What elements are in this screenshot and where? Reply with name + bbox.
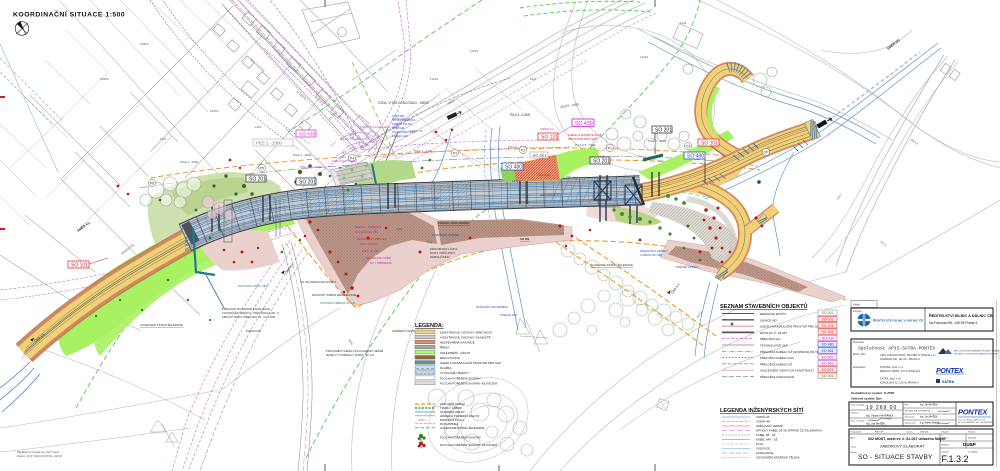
svg-text:SEZNAM STAVEBNÍCH OBJEKTŮ: SEZNAM STAVEBNÍCH OBJEKTŮ <box>720 302 808 310</box>
svg-text:PONTEX, spol. s r.o.: PONTEX, spol. s r.o. <box>880 365 904 369</box>
svg-text:APIS VODOHOSPODÁŘSKÉ PROJEKTY: APIS VODOHOSPODÁŘSKÉ PROJEKTY PRAHA s.r.… <box>954 350 1000 353</box>
svg-text:Vypracoval:: Vypracoval: <box>905 422 917 425</box>
svg-text:ODVODNĚNÍ KRAŽNÍHO TĚLESA: ODVODNĚNÍ KRAŽNÍHO TĚLESA <box>756 455 800 460</box>
svg-text:VODNÍ HM: VODNÍ HM <box>756 420 771 424</box>
svg-text:1422/1: 1422/1 <box>640 55 649 59</box>
svg-text:SATRA: SATRA <box>942 380 955 384</box>
svg-text:07/2024: 07/2024 <box>968 438 977 440</box>
svg-text:SATRA, spol. s r.o.: SATRA, spol. s r.o. <box>880 377 902 381</box>
svg-text:PILE 2 - 2000: PILE 2 - 2000 <box>293 153 312 157</box>
svg-text:VZDA. 1+536 KONCOVACI - 28000: VZDA. 1+536 KONCOVACI - 28000 <box>378 101 429 105</box>
svg-text:SILNICE I/62: SILNICE I/62 <box>760 318 777 322</box>
svg-text:I/62 MOST, most ev. č. 62-067: I/62 MOST, most ev. č. 62-067 uhlazeno M… <box>868 437 946 441</box>
svg-text:tel: +420 244062412 fax: +420: tel: +420 244062412 fax: +420 244062413 <box>958 421 994 424</box>
svg-text:Zhotovitel:: Zhotovitel: <box>853 341 864 344</box>
svg-text:SO 121: SO 121 <box>821 324 833 328</box>
svg-text:Ing. Jan MAŠEK: Ing. Jan MAŠEK <box>920 416 938 419</box>
svg-text:Título:: Título: <box>851 446 857 449</box>
svg-text:HIP:: HIP: <box>905 405 910 407</box>
svg-text:PŮV. MOSTU: PŮV. MOSTU <box>360 241 378 246</box>
svg-text:P2: P2 <box>521 148 525 152</box>
svg-text:1314: 1314 <box>530 77 537 81</box>
svg-text:PLOCHA POŘEŠENÍ SKUPINY KE KÁC: PLOCHA POŘEŠENÍ SKUPINY KE KÁCENÍ <box>440 442 497 447</box>
svg-text:KANALIZACE: KANALIZACE <box>756 451 774 455</box>
svg-text:Spolupráce:: Spolupráce: <box>853 366 866 369</box>
svg-text:OHRADNÍ 24b, 140 00 - PRAHA 4: OHRADNÍ 24b, 140 00 - PRAHA 4 <box>880 357 920 361</box>
svg-text:PROJEKTY VODOHOSPODÁŘSKÝCH STA: PROJEKTY VODOHOSPODÁŘSKÝCH STAVEB <box>954 353 998 356</box>
svg-text:KONSTRUKCE VOZOVKY NA MOSTĚ: KONSTRUKCE VOZOVKY NA MOSTĚ <box>440 335 491 340</box>
svg-text:SJEZD A MANIPULAČNÍ PROSTOR PR: SJEZD A MANIPULAČNÍ PROSTOR PRO SAP <box>440 360 501 365</box>
svg-text:DEMOLICE MOSTU: DEMOLICE MOSTU <box>760 312 786 316</box>
svg-text:LEGENDA:: LEGENDA: <box>415 323 444 329</box>
svg-text:SO 101: SO 101 <box>701 141 718 147</box>
svg-text:SO 201: SO 201 <box>299 180 316 186</box>
svg-text:SO 001: SO 001 <box>533 153 548 158</box>
svg-text:OCHRANNÉ PÁSMO ŽELEZNICE: OCHRANNÉ PÁSMO ŽELEZNICE <box>440 425 485 430</box>
svg-text:MOST EV. Č. 62-067: MOST EV. Č. 62-067 <box>760 330 787 335</box>
svg-text:PŘELOŽKA KABELŮ SŽ: PŘELOŽKA KABELŮ SŽ <box>760 361 792 366</box>
svg-text:Vedoucí:: Vedoucí: <box>851 413 860 415</box>
svg-text:KABEL SŽ - SŽ: KABEL SŽ - SŽ <box>756 432 776 437</box>
svg-text:Datum: 23.07.2024 13:45:51 +02: Datum: 23.07.2024 13:45:51 +02:00 <box>17 454 62 458</box>
svg-text:LEGENDA INŽENÝRSKÝCH SÍTÍ: LEGENDA INŽENÝRSKÝCH SÍTÍ <box>720 406 804 414</box>
svg-text:P6: P6 <box>150 181 154 185</box>
svg-text:STÁVAJÍCÍ ODVODNĚNÍ: STÁVAJÍCÍ ODVODNĚNÍ <box>476 304 508 309</box>
svg-text:Stupeň:: Stupeň: <box>942 431 950 434</box>
svg-text:OCHRANNÉ PÁSMO ŽELEZNICE: OCHRANNÉ PÁSMO ŽELEZNICE <box>590 262 633 267</box>
svg-text:DEMOLICE OPĚR: DEMOLICE OPĚR <box>366 255 392 260</box>
svg-text:Výškový systém: Bpv: Výškový systém: Bpv <box>851 397 882 401</box>
svg-text:SILNIČNÍHO TĚL.: SILNIČNÍHO TĚL. <box>355 229 379 234</box>
svg-text:SO 662: SO 662 <box>821 355 833 359</box>
svg-text:ZÁSAHY JSOU VEDENY: ZÁSAHY JSOU VEDENY <box>438 220 470 225</box>
svg-text:19 269 00: 19 269 00 <box>866 405 897 411</box>
svg-text:SO 201: SO 201 <box>655 128 672 134</box>
svg-text:SO 480: SO 480 <box>821 343 833 347</box>
svg-text:SO 480: SO 480 <box>687 154 704 160</box>
svg-text:NEZPEVNĚNÁ KRAJNICE: NEZPEVNĚNÁ KRAJNICE <box>440 340 475 345</box>
svg-text:PILE 1 - 2100: PILE 1 - 2100 <box>414 149 433 153</box>
svg-text:PONTEX: PONTEX <box>958 408 988 417</box>
svg-text:Datum:: Datum: <box>906 431 913 434</box>
svg-text:DOČASNÁ OPĚR. ZEĎ: DOČASNÁ OPĚR. ZEĎ <box>238 283 268 288</box>
svg-text:1301: 1301 <box>255 125 262 129</box>
svg-text:DOČASNÝ ZÁBOR MEZIDEPONIE: DOČASNÝ ZÁBOR MEZIDEPONIE <box>312 292 356 297</box>
svg-text:PILE 1 - 2000: PILE 1 - 2000 <box>256 141 282 146</box>
svg-text:Zprac. část:: Zprac. část: <box>853 353 866 356</box>
svg-text:POMOCNÁ: POMOCNÁ <box>246 329 261 333</box>
svg-text:1295/2: 1295/2 <box>140 42 149 46</box>
svg-text:SO 001 DEMOLICE MOSTU: SO 001 DEMOLICE MOSTU <box>300 280 336 284</box>
svg-text:KABEL NN: KABEL NN <box>410 129 423 133</box>
svg-text:SO 671: SO 671 <box>821 368 833 372</box>
svg-text:1297/2: 1297/2 <box>210 109 219 113</box>
svg-text:ŘEDITELSTVÍ SILNIC A DÁLNIC ČR: ŘEDITELSTVÍ SILNIC A DÁLNIC ČR <box>873 318 924 323</box>
svg-text:SO 101: SO 101 <box>71 263 88 269</box>
svg-text:PLOCHA POŘEŠENÍ SKUPINY: PLOCHA POŘEŠENÍ SKUPINY <box>440 435 481 440</box>
svg-text:BEZOVÁ 1658/1, 147 14 PRAHA 4: BEZOVÁ 1658/1, 147 14 PRAHA 4 <box>880 369 921 373</box>
svg-text:1313/2: 1313/2 <box>470 49 479 53</box>
svg-text:PLOCHA POŘEŠENÍ SKUPINY: PLOCHA POŘEŠENÍ SKUPINY <box>440 375 481 380</box>
svg-text:SO 001: SO 001 <box>821 311 833 315</box>
svg-text:PŘELOŽKA KABELŮ SŽ VE SPRÁVĚ Č: PŘELOŽKA KABELŮ SŽ VE SPRÁVĚ ČD-TEL <box>760 349 821 354</box>
svg-text:SO 301: SO 301 <box>821 374 833 378</box>
svg-text:Společnost APIS-SATRA-PONTEX: Společnost APIS-SATRA-PONTEX <box>858 346 935 352</box>
svg-text:Akce:: Akce: <box>851 437 857 440</box>
svg-text:SV. I PŘÍPRAVA: SV. I PŘÍPRAVA <box>370 260 392 265</box>
svg-text:ŘEDITELSTVÍ SILNIC A DÁLNIC ČR: ŘEDITELSTVÍ SILNIC A DÁLNIC ČR <box>929 313 993 318</box>
svg-text:OCHRANNÉ PÁSMO ŽELEZNICE: OCHRANNÉ PÁSMO ŽELEZNICE <box>140 322 183 327</box>
svg-text:1438: 1438 <box>396 227 402 231</box>
svg-text:P5: P5 <box>260 166 264 170</box>
svg-text:Souřadnicový systém: S-JTSK: Souřadnicový systém: S-JTSK <box>851 391 895 395</box>
svg-text:OPTICKÝ KABEL SŽ VE SPRÁVĚ ČD-: OPTICKÝ KABEL SŽ VE SPRÁVĚ ČD-TELEMATIKA <box>756 428 822 433</box>
svg-text:SO 001: SO 001 <box>520 237 530 241</box>
svg-text:KABEL HAV - SŽ: KABEL HAV - SŽ <box>756 437 778 442</box>
svg-text:1313/1: 1313/1 <box>430 77 439 81</box>
svg-text:+856/4: +856/4 <box>417 418 426 422</box>
svg-text:PILA 5 -21000: PILA 5 -21000 <box>510 113 530 117</box>
svg-text:UKOLEJNĚNÍ VODIVÝCH KONSTRUKCÍ: UKOLEJNĚNÍ VODIVÝCH KONSTRUKCÍ <box>760 368 814 373</box>
svg-text:DEMOLIČNÍHO: DEMOLIČNÍHO <box>430 254 451 259</box>
svg-text:DUSP: DUSP <box>963 442 976 447</box>
svg-text:PILE 3 - 2000: PILE 3 - 2000 <box>180 160 199 164</box>
svg-text:P1: P1 <box>608 146 612 150</box>
svg-text:SO - SITUACE STAVBY: SO - SITUACE STAVBY <box>858 454 933 461</box>
svg-text:NAVRŽENÁ OPRAVA: NAVRŽENÁ OPRAVA <box>432 232 459 237</box>
svg-text:VYVOLANÉ OBJEKTY: VYVOLANÉ OBJEKTY <box>440 370 470 375</box>
svg-text:ÚPRAVA SAP: ÚPRAVA SAP <box>500 312 517 317</box>
svg-text:SO 430: SO 430 <box>822 336 834 340</box>
svg-text:1295/8: 1295/8 <box>100 77 109 81</box>
svg-text:Investor:: Investor: <box>853 310 863 313</box>
svg-text:VODNÍ HA: VODNÍ HA <box>756 415 770 419</box>
svg-text:SO 430: SO 430 <box>575 121 593 127</box>
svg-text:DEMOL. OBJEKTU: DEMOL. OBJEKTU <box>355 225 381 229</box>
svg-text:APIS VODOHOSPOD. PROJEKTY PRAH: APIS VODOHOSPOD. PROJEKTY PRAHA s.r.o. <box>880 353 937 357</box>
svg-text:Číslo zakázky:: Číslo zakázky: <box>851 404 865 407</box>
svg-text:SO 121: SO 121 <box>541 135 558 141</box>
svg-text:Ing. Martin Vlasák: Ing. Martin Vlasák <box>920 422 940 425</box>
svg-text:Název:: Název: <box>851 452 858 454</box>
svg-text:PŘELOŽKA HA: PŘELOŽKA HA <box>760 336 780 341</box>
svg-text:ZBOČNÍ TRASY PŘEVODU DL. CCA 3: ZBOČNÍ TRASY PŘEVODU DL. CCA 30M <box>222 314 276 319</box>
svg-text:Výtisk:: Výtisk: <box>853 303 861 307</box>
svg-text:SO 480: SO 480 <box>505 165 522 171</box>
svg-text:KONSTRUKCE VOZOVKY MIMO MOST: KONSTRUKCE VOZOVKY MIMO MOST <box>440 330 493 334</box>
svg-text:ODSTRANIT ZBYTKY: ODSTRANIT ZBYTKY <box>357 237 387 241</box>
svg-text:Objednatel:: Objednatel: <box>851 431 863 434</box>
svg-text:Tech. kontrola:: Tech. kontrola: <box>851 420 866 423</box>
svg-text:SO 201: SO 201 <box>249 177 266 183</box>
svg-text:Č. přílohy: Č. přílohy <box>968 451 978 454</box>
svg-text:PLOCHA POŘEŠENÍ SKUPINY KE KÁC: PLOCHA POŘEŠENÍ SKUPINY KE KÁCENÍ <box>440 380 497 385</box>
svg-text:Na Pankráci 56, 145 05 Praha 4: Na Pankráci 56, 145 05 Praha 4 <box>929 321 977 325</box>
svg-text:SDĚLOVACÍ VEDENÍ: SDĚLOVACÍ VEDENÍ <box>756 423 783 428</box>
svg-text:F.1.3.2: F.1.3.2 <box>942 454 969 464</box>
svg-text:BUDE VYTVOŘENA V RÁMCI SO 121: BUDE VYTVOŘENA V RÁMCI SO 121 <box>326 352 375 357</box>
svg-text:VILA SAP: VILA SAP <box>538 173 550 177</box>
svg-text:EV.Č. 62-067: EV.Č. 62-067 <box>362 248 380 253</box>
svg-text:Formát:: Formát: <box>968 431 976 434</box>
svg-text:PLYN: PLYN <box>756 442 763 446</box>
svg-text:PŮVODNÍ OPĚRNÁ STĚNA: PŮVODNÍ OPĚRNÁ STĚNA <box>320 300 356 305</box>
svg-text:DLAŽBA: DLAŽBA <box>440 365 451 370</box>
svg-text:Ing. Václav HAVRÁNEK: Ing. Václav HAVRÁNEK <box>866 414 894 418</box>
svg-text:ODHUMNĚNÍ - NÁSYP: ODHUMNĚNÍ - NÁSYP <box>440 350 470 355</box>
svg-text:ZPĚTNÉ ÚPRAVY: ZPĚTNÉ ÚPRAVY <box>676 264 699 269</box>
svg-text:O1: O1 <box>686 144 691 148</box>
svg-text:VEDENÍ HA: VEDENÍ HA <box>540 127 554 131</box>
svg-text:SO 101: SO 101 <box>821 318 833 322</box>
svg-text:TECHNOLOGIE SAP: TECHNOLOGIE SAP <box>760 344 788 348</box>
svg-text:PROSTOR PRO SAP: PROSTOR PRO SAP <box>568 137 597 141</box>
svg-text:1444/2: 1444/2 <box>512 179 521 183</box>
svg-text:SO 201: SO 201 <box>593 159 610 165</box>
svg-text:V RÁMCI SO 480: V RÁMCI SO 480 <box>640 253 662 257</box>
svg-text:Zpracoval:: Zpracoval: <box>905 416 916 419</box>
svg-text:SOKOLSKÁ 32, 120 00 PRAHA 2: SOKOLSKÁ 32, 120 00 PRAHA 2 <box>880 381 919 385</box>
svg-text:PŘELOŽKA KANALIZACE: PŘELOŽKA KANALIZACE <box>760 374 794 379</box>
svg-text:P3: P3 <box>453 151 457 155</box>
svg-text:07/2024: 07/2024 <box>920 432 929 434</box>
svg-text:SO 201: SO 201 <box>821 330 833 334</box>
svg-text:ŘÍMSA: ŘÍMSA <box>440 345 449 350</box>
svg-text:Měřítko:: Měřítko: <box>942 444 950 447</box>
svg-text:Ing. Jan MAŠEK: Ing. Jan MAŠEK <box>920 404 938 407</box>
svg-text:PILA 3,5 - 2400: PILA 3,5 - 2400 <box>575 143 596 147</box>
svg-text:SO 661: SO 661 <box>821 349 833 353</box>
svg-text:SO 663: SO 663 <box>821 362 833 366</box>
svg-text:1297: 1297 <box>160 137 167 141</box>
svg-text:REKULTIVACE: REKULTIVACE <box>440 356 460 360</box>
svg-text:ZÁBOROVÝ ELABORÁT: ZÁBOROVÝ ELABORÁT <box>880 444 925 449</box>
svg-text:PŘELOŽKA KABELŮ HAV: PŘELOŽKA KABELŮ HAV <box>760 355 794 360</box>
svg-text:SO 430: SO 430 <box>299 132 316 138</box>
svg-text:SJEZD A MANIPULAČNÍ PROSTOR PR: SJEZD A MANIPULAČNÍ PROSTOR PRO SAP <box>760 324 821 329</box>
svg-text:KOORDINAČNÍ SITUACE 1:500: KOORDINAČNÍ SITUACE 1:500 <box>13 10 125 19</box>
svg-text:PILE 6 - 2000: PILE 6 - 2000 <box>648 139 667 143</box>
svg-text:OP: OP <box>764 150 770 154</box>
svg-text:TECHNICKÁ KONTROLA:: TECHNICKÁ KONTROLA: <box>905 410 931 413</box>
svg-text:VODOVOD: VODOVOD <box>756 447 770 451</box>
svg-text:ŘSD ČR: ŘSD ČR <box>875 431 884 434</box>
svg-text:1423: 1423 <box>680 21 687 25</box>
